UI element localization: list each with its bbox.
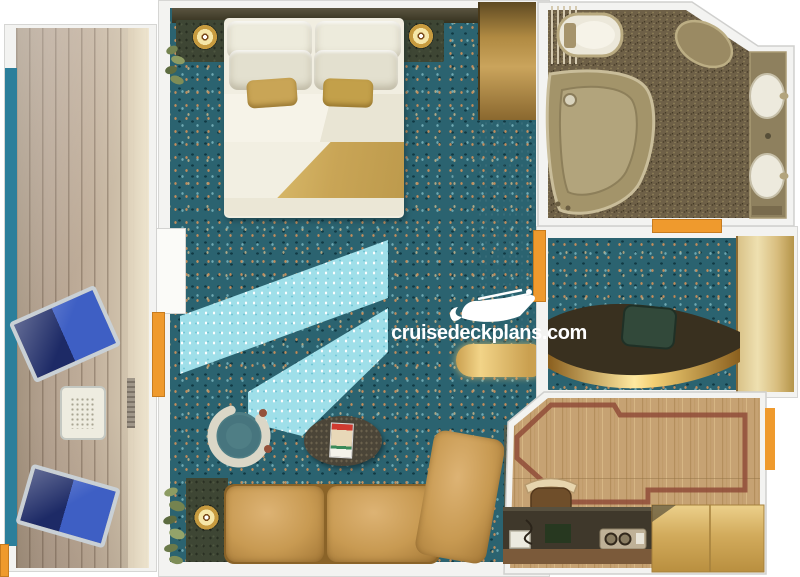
table-lamp-left bbox=[192, 24, 218, 50]
barrel-chair bbox=[200, 400, 278, 472]
ice-bucket bbox=[545, 524, 571, 543]
watermark-text: cruisedeckplans.com bbox=[369, 322, 609, 345]
vanity-light-strip bbox=[456, 344, 537, 377]
room-bathroom bbox=[536, 0, 800, 232]
glass bbox=[636, 533, 644, 544]
plant-bottom bbox=[162, 484, 188, 568]
balcony-door bbox=[156, 228, 186, 314]
bed-foot-sheet bbox=[224, 198, 404, 216]
cruise-ship-icon bbox=[448, 286, 536, 326]
balcony-table-perforation bbox=[70, 397, 96, 429]
lounge-wall-accent bbox=[765, 408, 775, 470]
balcony-table bbox=[60, 386, 106, 440]
floor-drain bbox=[765, 133, 771, 139]
floorplan-canvas: cruisedeckplans.com bbox=[0, 0, 800, 577]
counter-front bbox=[503, 549, 655, 564]
cup bbox=[606, 534, 617, 545]
tub-faucet bbox=[564, 94, 576, 106]
sink-top bbox=[750, 74, 784, 118]
cup bbox=[620, 534, 631, 545]
accent-pillow bbox=[323, 78, 374, 108]
plant-top bbox=[164, 42, 188, 92]
room-lounge bbox=[498, 388, 800, 577]
lounge-chair-seat bbox=[9, 285, 122, 384]
sink-faucet bbox=[780, 93, 789, 100]
lounge-chair-1 bbox=[12, 286, 118, 382]
sink-bottom bbox=[750, 154, 784, 198]
storage-cabinet bbox=[652, 505, 764, 572]
deck-vent bbox=[127, 378, 135, 428]
sofa-cushion bbox=[226, 486, 324, 562]
accent-pillow bbox=[246, 77, 298, 108]
table-lamp-right bbox=[408, 23, 434, 49]
lounge-chair-seat bbox=[15, 464, 121, 549]
balcony-deck-edge bbox=[128, 28, 149, 568]
toilet-tank bbox=[564, 23, 576, 48]
magazine bbox=[329, 422, 354, 458]
desk-chair bbox=[620, 304, 677, 351]
wardrobe bbox=[478, 2, 536, 120]
balcony-door-frame bbox=[152, 312, 165, 397]
floor-lamp bbox=[193, 504, 220, 531]
lounge-chair-2 bbox=[16, 460, 120, 552]
mirror-panel bbox=[736, 236, 794, 392]
sink-faucet bbox=[780, 173, 789, 180]
bathroom-door-frame bbox=[652, 219, 722, 233]
balcony-accent bbox=[0, 544, 9, 577]
